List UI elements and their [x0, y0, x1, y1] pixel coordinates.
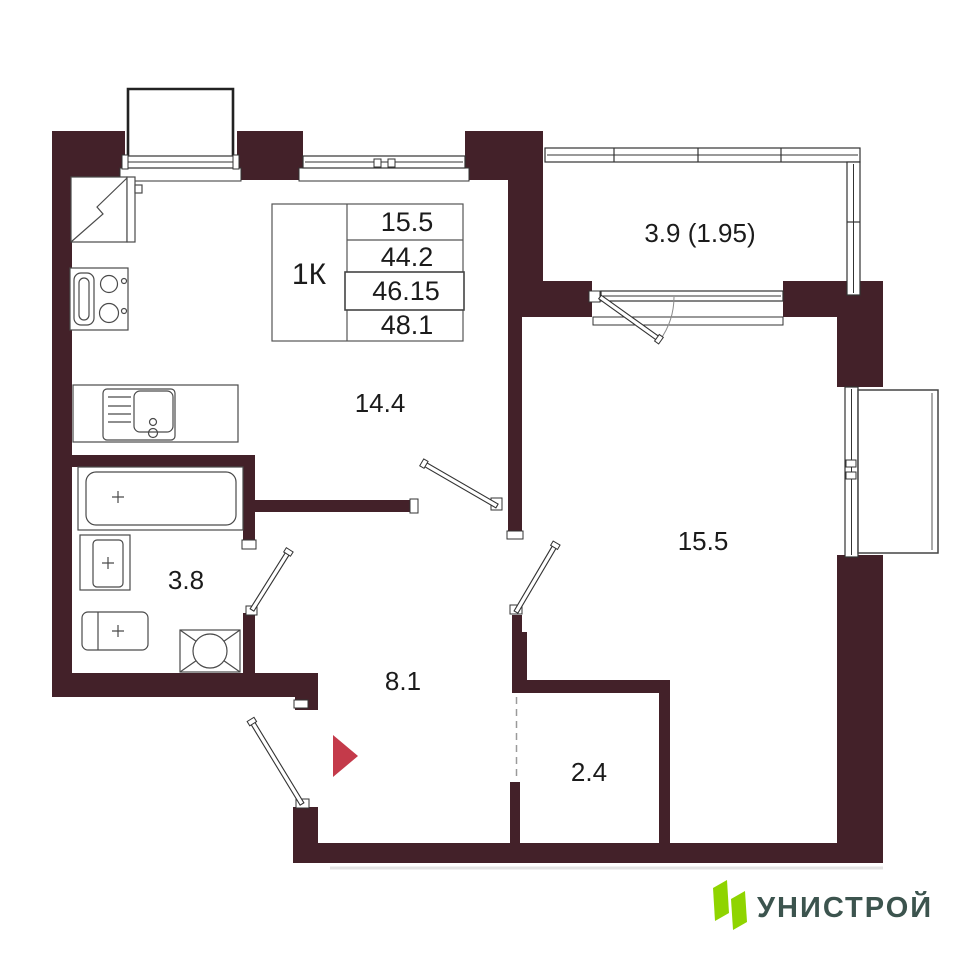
balcony-door-hinge — [589, 291, 600, 302]
window-box-outline — [128, 89, 233, 158]
wall-wardrobe-top — [512, 680, 670, 693]
kitchen-counter — [73, 385, 238, 442]
wall-room-door-stub-widen — [522, 632, 527, 680]
logo-leaf-icon-left — [713, 880, 729, 921]
entry-notch-cap — [294, 700, 308, 708]
room-right-window-handle-b — [846, 472, 856, 479]
central-wall-end-cap — [507, 531, 523, 539]
label-wardrobe: 2.4 — [571, 757, 607, 787]
wall-right-lower — [837, 555, 883, 863]
entrance-arrow — [333, 735, 358, 777]
window2-handle-b — [388, 159, 395, 167]
wall-wardrobe-lower-stub — [510, 782, 520, 843]
bathroom-door-leaf — [249, 548, 294, 612]
room-door-leaf — [513, 541, 560, 614]
info-table-value-4: 48.1 — [381, 310, 434, 340]
logo-text: УНИСТРОЙ — [757, 890, 933, 924]
wall-left — [52, 131, 72, 697]
doors — [242, 291, 674, 808]
wall-central-upper — [508, 180, 543, 317]
kitchen-door-leaf — [420, 459, 499, 510]
floorplan-svg: 1К 15.5 44.2 46.15 48.1 14.4 15.5 8.1 3.… — [0, 0, 960, 960]
wall-right-upper — [837, 281, 883, 387]
wall-hall-kitchen — [255, 500, 417, 512]
wall-wardrobe-right — [659, 693, 670, 843]
label-hallway: 8.1 — [385, 666, 421, 696]
info-table-value-2: 44.2 — [381, 242, 434, 272]
info-table-type: 1К — [292, 258, 327, 291]
wall-kitchen-bath — [52, 455, 255, 467]
exterior-basket — [858, 390, 938, 553]
cabinet-handle — [135, 185, 142, 193]
wall-room-door-stub — [512, 615, 522, 680]
window2-sill — [299, 168, 469, 181]
info-table-value-3: 46.15 — [372, 276, 440, 306]
wall-balcony-left-arm — [543, 281, 592, 317]
wall-entry-stub — [293, 807, 318, 843]
label-bathroom: 3.8 — [168, 565, 204, 595]
wall-top-b — [237, 131, 303, 180]
wall-top-a — [52, 131, 125, 180]
label-living-room: 15.5 — [678, 526, 729, 556]
info-table: 1К 15.5 44.2 46.15 48.1 — [272, 204, 464, 341]
bathtub — [78, 467, 243, 530]
window2-handle-a — [374, 159, 381, 167]
entrance-door-leaf — [247, 717, 305, 806]
label-kitchen-living: 14.4 — [355, 388, 406, 418]
brand-logo: УНИСТРОЙ — [713, 880, 933, 930]
wall-bath-right-upper — [243, 455, 255, 547]
bath-wall-end-cap — [242, 540, 256, 549]
wall-top-c — [465, 131, 543, 180]
logo-leaf-icon-right — [731, 891, 747, 930]
wall-bottom — [293, 843, 883, 863]
window1-sill — [120, 168, 241, 181]
label-balcony: 3.9 (1.95) — [644, 218, 755, 248]
window1-cap-right — [233, 155, 239, 169]
cabinet-panel — [127, 177, 135, 242]
floorplan-page: 1К 15.5 44.2 46.15 48.1 14.4 15.5 8.1 3.… — [0, 0, 960, 960]
hall-wall-end-cap — [410, 499, 418, 513]
fixtures — [70, 177, 243, 672]
wall-bath-right-lower — [243, 613, 255, 673]
wall-bath-bottom — [52, 673, 318, 697]
room-right-window-handle-a — [846, 460, 856, 467]
washing-machine-drum — [193, 634, 227, 668]
wall-balcony-right-block — [783, 281, 837, 317]
balcony-wall-sill — [593, 317, 783, 325]
window1-cap-left — [122, 155, 128, 169]
info-table-value-1: 15.5 — [381, 207, 434, 237]
wall-central-thin — [508, 317, 522, 533]
